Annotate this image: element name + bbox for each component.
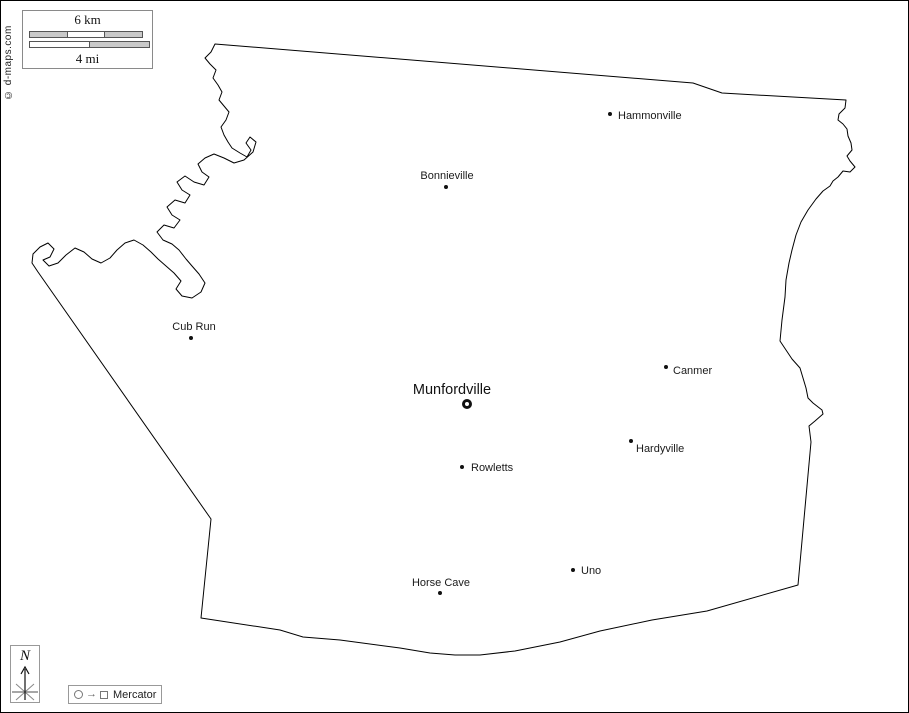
town-label: Uno xyxy=(581,565,601,578)
north-label: N xyxy=(11,648,39,664)
town-dot xyxy=(438,591,442,595)
projection-name: Mercator xyxy=(111,689,156,701)
county-seat-marker xyxy=(462,399,472,409)
scale-bar-km xyxy=(29,31,143,38)
projection-legend: → Mercator xyxy=(68,685,162,704)
county-outline-svg xyxy=(0,0,909,713)
globe-circle-icon xyxy=(74,690,83,699)
town-label: Bonnieville xyxy=(420,170,473,183)
town-label: Munfordville xyxy=(413,382,491,399)
town-label: Cub Run xyxy=(172,321,215,334)
transform-arrow-icon: → xyxy=(86,689,97,700)
scale-segment xyxy=(30,42,90,47)
town-dot xyxy=(608,112,612,116)
town-dot xyxy=(571,568,575,572)
town-dot xyxy=(460,465,464,469)
town-dot xyxy=(664,365,668,369)
north-compass: N xyxy=(10,645,40,703)
scale-km-label: 6 km xyxy=(23,11,152,28)
scale-segment xyxy=(68,32,106,37)
scale-mi-label: 4 mi xyxy=(23,50,152,67)
town-label: Canmer xyxy=(673,365,712,378)
scale-segment xyxy=(30,32,68,37)
town-label: Hardyville xyxy=(636,443,684,456)
county-boundary xyxy=(32,44,855,655)
scale-bar-mi xyxy=(29,41,150,48)
map-page: © d-maps.com 6 km 4 mi N → Mercator Hamm… xyxy=(0,0,909,713)
town-label: Hammonville xyxy=(618,110,682,123)
scale-bar: 6 km 4 mi xyxy=(22,10,153,69)
scale-segment xyxy=(105,32,142,37)
town-dot xyxy=(444,185,448,189)
projected-square-icon xyxy=(100,691,108,699)
copyright-watermark: © d-maps.com xyxy=(3,8,16,118)
town-dot xyxy=(189,336,193,340)
town-dot xyxy=(629,439,633,443)
scale-segment xyxy=(90,42,149,47)
town-label: Rowletts xyxy=(471,462,513,475)
town-label: Horse Cave xyxy=(412,577,470,590)
north-arrow-icon xyxy=(11,664,39,702)
